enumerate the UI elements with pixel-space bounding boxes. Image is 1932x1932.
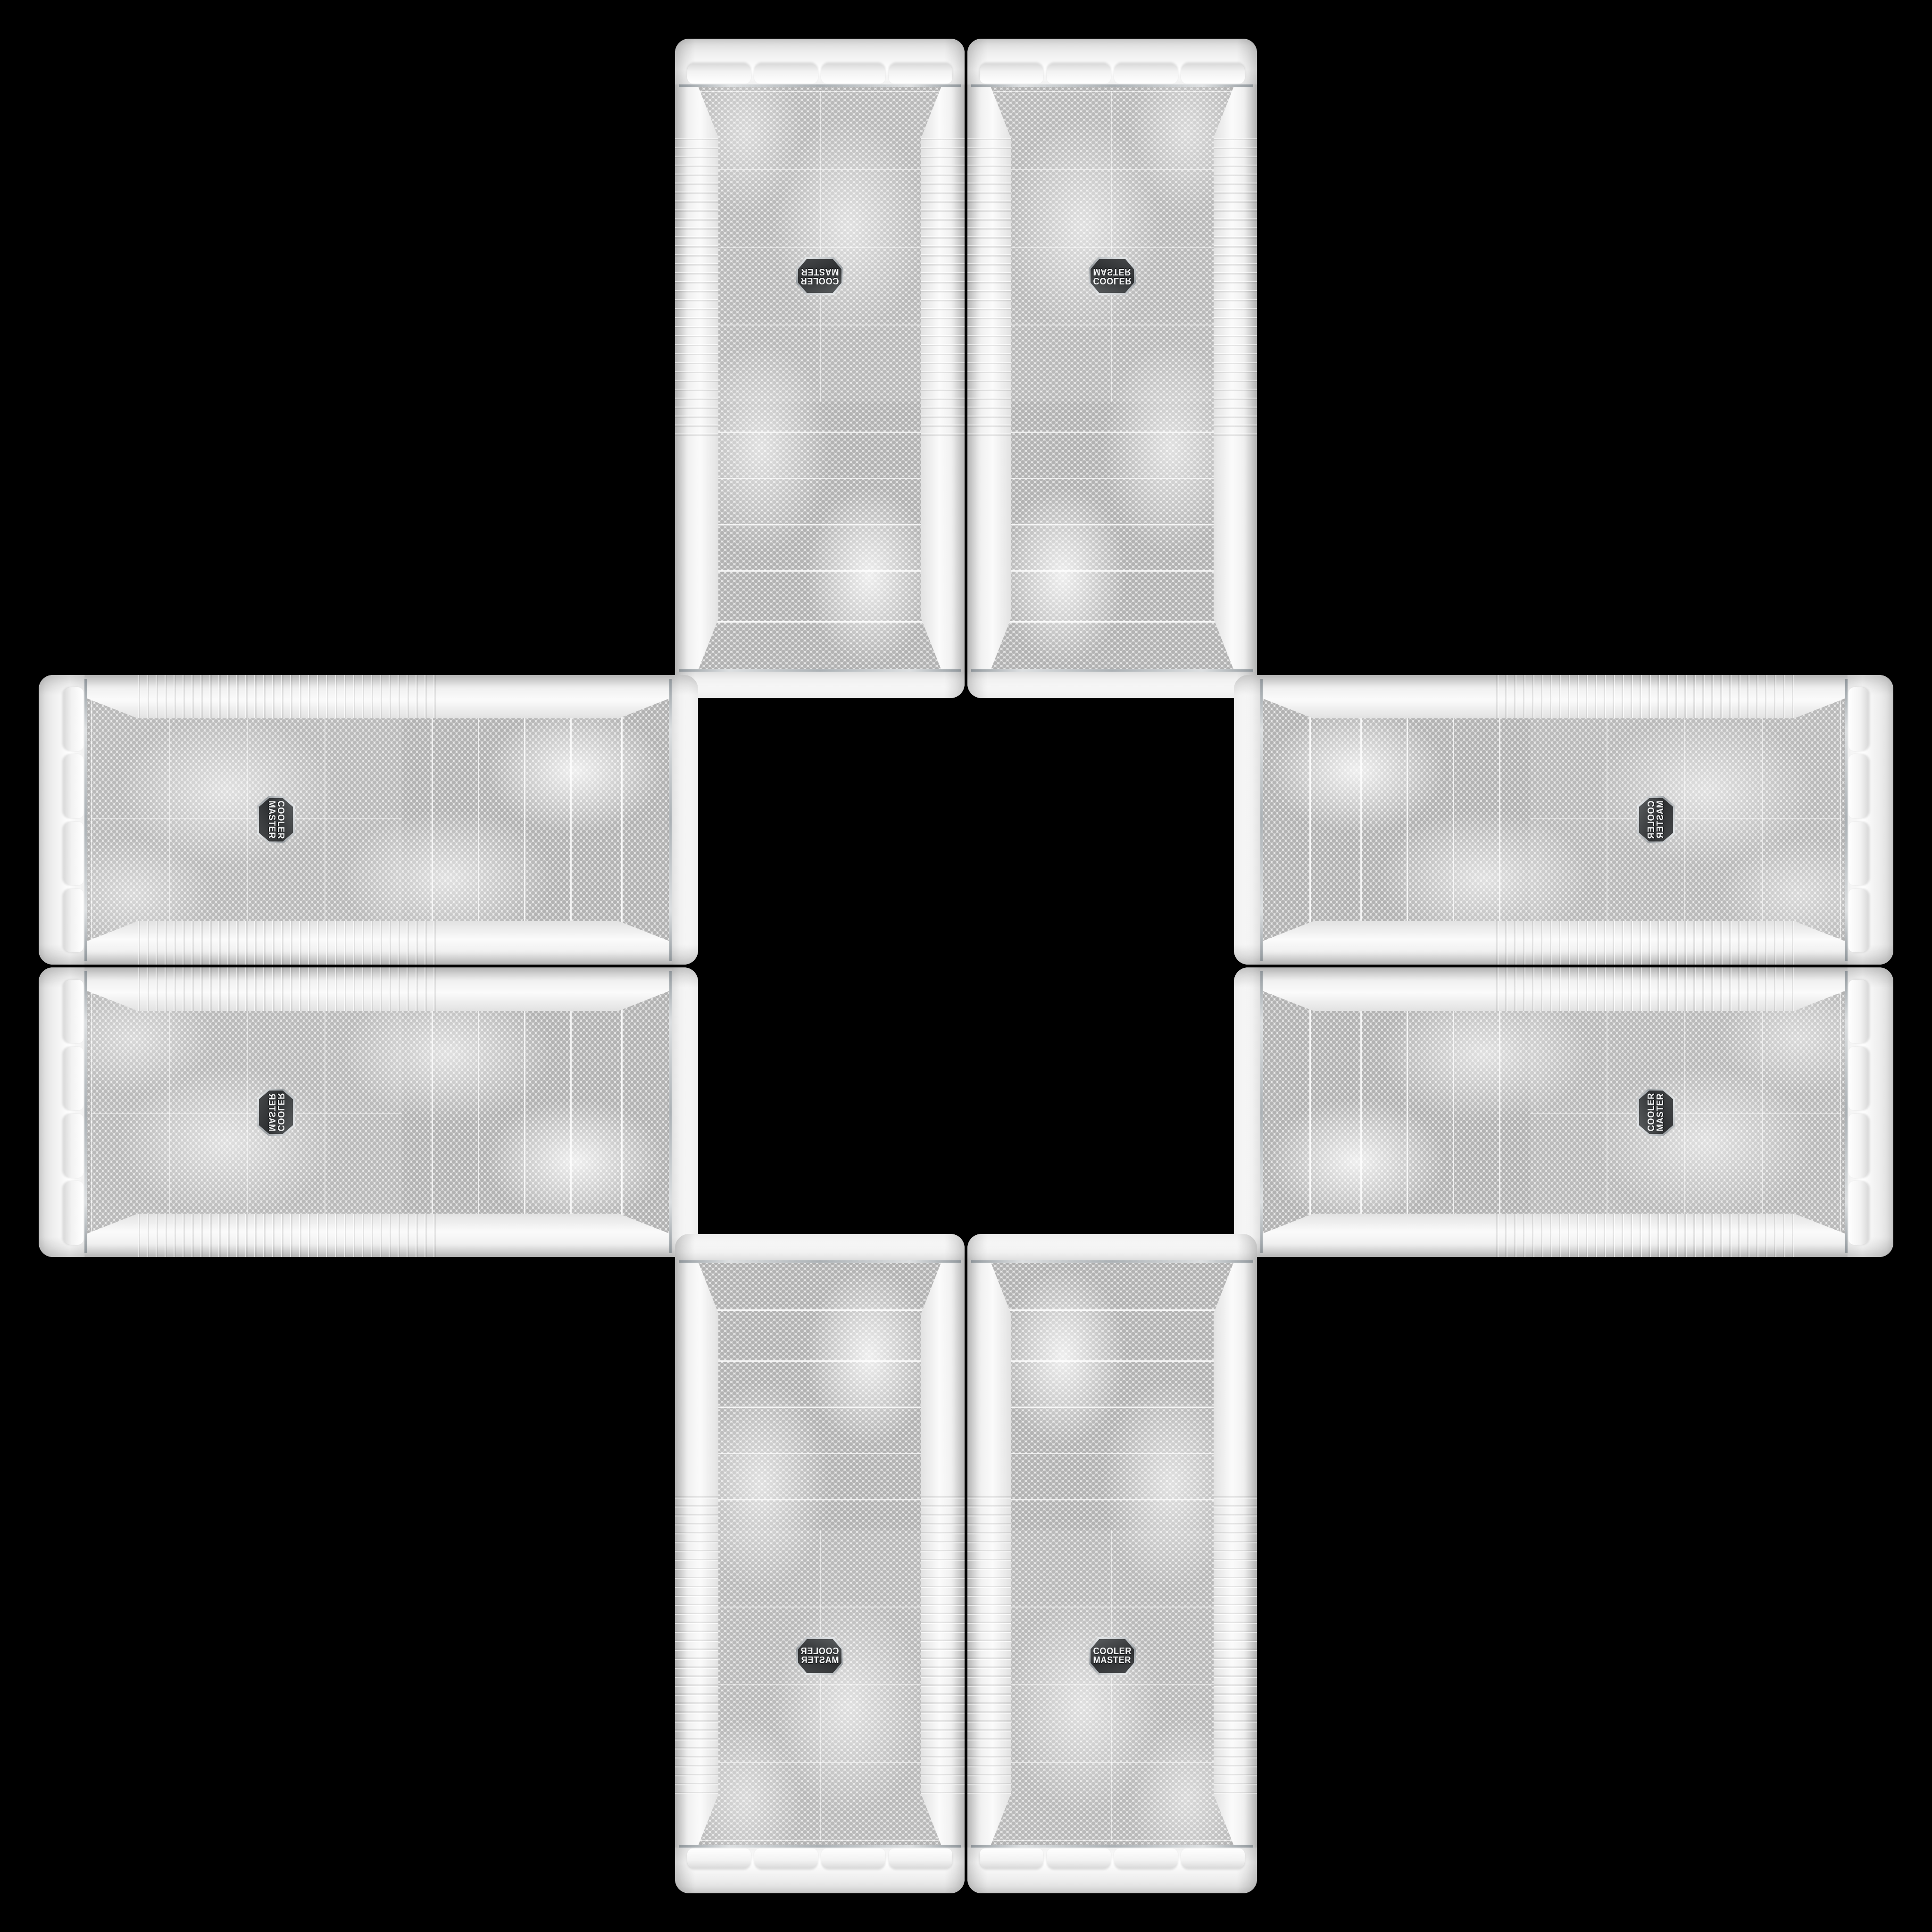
chrome-trim-top	[1260, 971, 1263, 1253]
scallop-segment	[64, 889, 83, 952]
case-side-rail-left	[85, 675, 672, 718]
chrome-trim-bottom	[971, 84, 1253, 87]
case-slot-top-left: COOLER MASTER	[675, 39, 965, 698]
case-top-cap	[1234, 967, 1260, 1257]
chrome-trim-bottom	[679, 1845, 961, 1848]
bottom-cap-scallop-row	[687, 64, 952, 83]
badge-text-line2: MASTER	[801, 1656, 839, 1665]
scallop-segment	[1849, 754, 1868, 818]
case-top-cap	[967, 672, 1257, 698]
chrome-trim-top	[971, 1260, 1253, 1263]
mesh-front-panel	[87, 697, 669, 943]
scallop-segment	[1181, 1849, 1245, 1868]
case-side-rail-left	[85, 1214, 672, 1257]
pc-case: COOLER MASTER	[675, 39, 965, 698]
case-top-cap	[672, 967, 698, 1257]
case-side-rail-right	[675, 85, 718, 672]
badge-text-line1: COOLER	[276, 800, 285, 839]
bottom-cap-scallop-row	[687, 1849, 952, 1868]
pc-case: COOLER MASTER	[1234, 675, 1893, 965]
scallop-segment	[64, 822, 83, 885]
case-side-rail-left	[921, 85, 965, 672]
chrome-trim-bottom	[679, 84, 961, 87]
badge-text-line1: COOLER	[1093, 276, 1131, 285]
badge-text-line2: MASTER	[267, 801, 276, 839]
case-side-rail-right	[1260, 921, 1847, 965]
pc-case: COOLER MASTER	[967, 39, 1257, 698]
chrome-trim-top	[1260, 679, 1263, 961]
chrome-trim-bottom	[1845, 971, 1848, 1253]
scallop-segment	[980, 64, 1043, 83]
pc-case: COOLER MASTER	[1234, 967, 1893, 1257]
case-side-rail-right	[675, 1260, 718, 1847]
chrome-trim-top	[669, 679, 672, 961]
pc-case: COOLER MASTER	[39, 967, 698, 1257]
scallop-segment	[1849, 980, 1868, 1043]
chrome-trim-bottom	[84, 679, 87, 961]
badge-text-line2: MASTER	[801, 267, 839, 276]
case-slot-bottom-left: COOLER MASTER	[675, 1234, 965, 1893]
scallop-segment	[1849, 1114, 1868, 1178]
case-side-rail-left	[967, 85, 1011, 672]
case-top-cap	[967, 1234, 1257, 1260]
bottom-cap-scallop-row	[1849, 980, 1868, 1245]
badge-text-line2: MASTER	[1656, 1093, 1665, 1131]
scallop-segment	[1114, 64, 1178, 83]
scallop-segment	[1181, 64, 1245, 83]
chrome-trim-top	[679, 1260, 961, 1263]
scallop-segment	[889, 64, 952, 83]
cooler-master-badge: COOLER MASTER	[798, 1639, 841, 1673]
bottom-cap-scallop-row	[64, 980, 83, 1245]
mesh-front-panel	[989, 87, 1235, 669]
scallop-segment	[754, 1849, 818, 1868]
mesh-front-panel	[697, 87, 943, 669]
scallop-segment	[687, 64, 751, 83]
scallop-segment	[822, 64, 885, 83]
case-side-rail-right	[85, 921, 672, 965]
cooler-master-badge: COOLER MASTER	[1639, 1091, 1673, 1134]
cooler-master-badge: COOLER MASTER	[798, 259, 841, 293]
scallop-segment	[1849, 1181, 1868, 1245]
case-side-rail-right	[85, 967, 672, 1011]
product-collage-scene: COOLER MASTER COOLER MASTER	[0, 0, 1932, 1932]
case-side-rail-right	[1214, 85, 1257, 672]
badge-text-line2: MASTER	[1093, 267, 1131, 276]
cooler-master-badge: COOLER MASTER	[259, 798, 293, 841]
chrome-trim-top	[669, 971, 672, 1253]
pc-case: COOLER MASTER	[967, 1234, 1257, 1893]
scallop-segment	[1849, 687, 1868, 751]
scallop-segment	[889, 1849, 952, 1868]
chrome-trim-bottom	[971, 1845, 1253, 1848]
badge-text-line2: MASTER	[267, 1093, 276, 1131]
badge-text-line1: COOLER	[800, 276, 839, 285]
bottom-cap-scallop-row	[980, 64, 1245, 83]
scallop-segment	[1047, 64, 1110, 83]
scallop-segment	[64, 754, 83, 818]
chrome-trim-top	[971, 669, 1253, 672]
mesh-front-panel	[1263, 989, 1845, 1235]
scallop-segment	[754, 64, 818, 83]
pc-case: COOLER MASTER	[675, 1234, 965, 1893]
bottom-cap-scallop-row	[980, 1849, 1245, 1868]
scallop-segment	[64, 1114, 83, 1178]
case-top-cap	[675, 1234, 965, 1260]
scallop-segment	[64, 980, 83, 1043]
case-slot-right-bottom: COOLER MASTER	[1234, 967, 1893, 1257]
case-top-cap	[675, 672, 965, 698]
chrome-trim-top	[679, 669, 961, 672]
case-slot-left-bottom: COOLER MASTER	[39, 967, 698, 1257]
case-side-rail-left	[921, 1260, 965, 1847]
chrome-trim-bottom	[84, 971, 87, 1253]
case-top-cap	[1234, 675, 1260, 965]
scallop-segment	[1849, 1047, 1868, 1110]
case-slot-right-top: COOLER MASTER	[1234, 675, 1893, 965]
scallop-segment	[64, 687, 83, 751]
chrome-trim-bottom	[1845, 679, 1848, 961]
cooler-master-badge: COOLER MASTER	[1639, 798, 1673, 841]
badge-text-line2: MASTER	[1093, 1656, 1131, 1665]
cooler-master-badge: COOLER MASTER	[259, 1091, 293, 1134]
case-slot-bottom-right: COOLER MASTER	[967, 1234, 1257, 1893]
scallop-segment	[980, 1849, 1043, 1868]
scallop-segment	[1849, 822, 1868, 885]
scallop-segment	[687, 1849, 751, 1868]
badge-text-line1: COOLER	[276, 1093, 285, 1131]
scallop-segment	[64, 1047, 83, 1110]
scallop-segment	[822, 1849, 885, 1868]
case-slot-left-top: COOLER MASTER	[39, 675, 698, 965]
pc-case: COOLER MASTER	[39, 675, 698, 965]
scallop-segment	[1114, 1849, 1178, 1868]
scallop-segment	[64, 1181, 83, 1245]
case-side-rail-right	[1260, 967, 1847, 1011]
mesh-front-panel	[989, 1263, 1235, 1845]
mesh-front-panel	[697, 1263, 943, 1845]
cooler-master-badge: COOLER MASTER	[1091, 1639, 1134, 1673]
bottom-cap-scallop-row	[64, 687, 83, 952]
case-slot-top-right: COOLER MASTER	[967, 39, 1257, 698]
case-side-rail-left	[1260, 1214, 1847, 1257]
case-side-rail-left	[967, 1260, 1011, 1847]
case-side-rail-left	[1260, 675, 1847, 718]
mesh-front-panel	[87, 989, 669, 1235]
bottom-cap-scallop-row	[1849, 687, 1868, 952]
case-side-rail-right	[1214, 1260, 1257, 1847]
badge-text-line2: MASTER	[1656, 801, 1665, 839]
case-top-cap	[672, 675, 698, 965]
cooler-master-badge: COOLER MASTER	[1091, 259, 1134, 293]
mesh-front-panel	[1263, 697, 1845, 943]
scallop-segment	[1047, 1849, 1110, 1868]
scallop-segment	[1849, 889, 1868, 952]
